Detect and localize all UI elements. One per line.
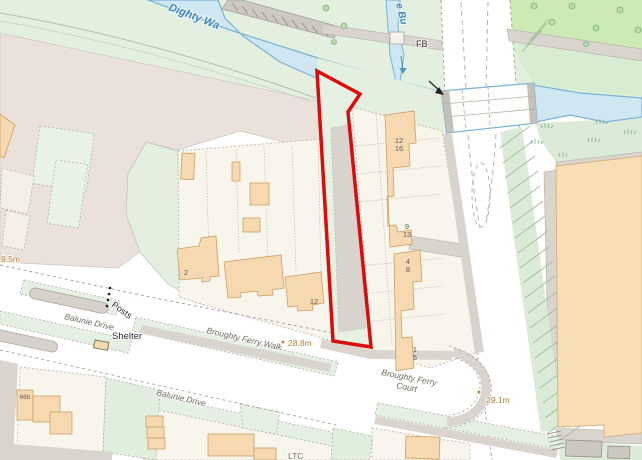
spot-height-court: 29.1m	[486, 395, 510, 405]
spot-height-west: 9.5m	[1, 254, 20, 264]
house-number: 5	[413, 353, 417, 362]
tree-icon	[569, 3, 575, 9]
terrace	[208, 434, 254, 456]
outbuilding	[232, 162, 240, 181]
footbridge-label: FB	[416, 39, 428, 49]
footbridge-deck	[390, 32, 404, 44]
outbuilding	[181, 153, 195, 180]
house	[254, 448, 276, 460]
house	[50, 412, 72, 434]
tree-icon	[635, 27, 641, 33]
tree-icon	[593, 25, 599, 31]
house-number: 2	[184, 268, 188, 277]
house	[405, 436, 440, 459]
house	[146, 416, 163, 427]
shelter-label: Shelter	[112, 331, 142, 342]
house-number: 8	[406, 265, 410, 274]
outbuilding	[250, 183, 269, 205]
tree-icon	[332, 40, 337, 45]
shelter-building	[94, 340, 109, 350]
plot-outline-a	[0, 168, 34, 214]
tree-icon	[531, 3, 537, 9]
tree-icon	[617, 7, 623, 13]
outbuilding	[243, 218, 260, 232]
tree-icon	[341, 23, 347, 29]
house-number: 13	[403, 230, 411, 239]
house-number: 12	[310, 297, 318, 306]
map-canvas[interactable]: Dighty Wa e Bu FB Posts Shelter Balunie …	[0, 0, 642, 460]
large-building-east	[556, 156, 642, 437]
tree-icon	[549, 19, 555, 25]
spot-height-walk: 28.8m	[288, 338, 312, 348]
partial-label: LTC	[288, 451, 303, 460]
house	[148, 438, 165, 449]
tree-icon	[323, 5, 329, 11]
tree-icon	[584, 42, 589, 47]
house-number: 66b	[20, 394, 31, 401]
spot-height-dot	[478, 391, 481, 394]
map-viewport[interactable]: Dighty Wa e Bu FB Posts Shelter Balunie …	[0, 0, 642, 460]
house-number: 16	[395, 144, 403, 153]
house	[147, 427, 164, 438]
